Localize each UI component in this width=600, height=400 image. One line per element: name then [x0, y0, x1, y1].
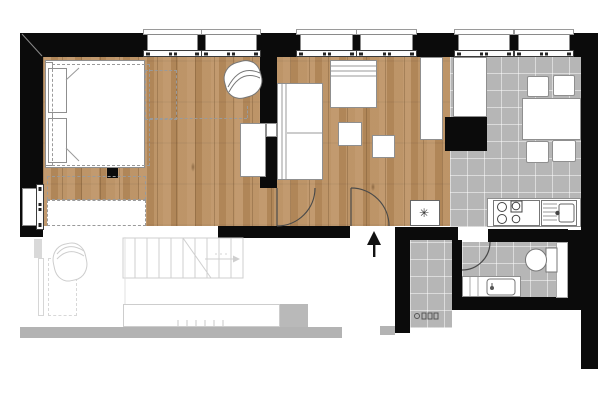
- interior-wall-hall-bottom: [218, 226, 350, 238]
- tall-kitchen-cabinet: [453, 57, 487, 117]
- faded-side-window: [38, 258, 44, 316]
- wall-bathroom-top: [488, 229, 568, 242]
- wall-bathroom-bottom: [452, 297, 588, 310]
- sofa: [277, 83, 323, 180]
- faded-left-wall-block: [34, 239, 42, 258]
- entrance-arrow: [367, 231, 381, 257]
- floor-plan: ✳: [0, 0, 600, 400]
- dashed-ceiling-line: [150, 118, 247, 119]
- hall-wardrobe: [420, 57, 443, 140]
- wall-vestibule-left: [395, 240, 410, 333]
- faded-staircase: [123, 238, 243, 278]
- duct-shaft: [556, 242, 568, 298]
- washing-machine-symbol: ✳: [419, 207, 429, 219]
- dining-chair: [526, 141, 549, 163]
- coffee-table-small: [338, 122, 362, 146]
- faded-counter: [123, 304, 280, 327]
- coffee-table-small: [372, 135, 395, 158]
- interior-wall-entry-right: [395, 227, 458, 240]
- bathroom-vanity: [462, 276, 521, 297]
- daybed-seat: [330, 60, 377, 108]
- dashed-ceiling-outline-bed: [52, 64, 150, 166]
- cooktop: [493, 200, 540, 226]
- dining-table: [522, 98, 581, 140]
- desk-extension: [266, 123, 277, 137]
- dashed-wardrobe-below-bed-2: [47, 200, 146, 226]
- kitchen-sink-unit: [541, 200, 577, 226]
- dining-chair: [553, 75, 575, 96]
- faded-wall-stub: [380, 326, 395, 335]
- faded-lower-wall-band: [20, 327, 342, 338]
- dining-chair: [552, 140, 576, 162]
- kitchen-wall-block: [445, 117, 487, 151]
- vestibule-tile-floor: [410, 240, 452, 328]
- dashed-wardrobe-right-of-bed: [145, 70, 177, 120]
- desk: [240, 123, 266, 177]
- dashed-ceiling-line-vert: [247, 106, 248, 118]
- wall-bathroom-right-pier: [568, 230, 581, 298]
- exterior-wall-right: [581, 33, 598, 369]
- dashed-wardrobe-below-bed-1: [47, 176, 146, 200]
- faded-column-block: [280, 304, 308, 327]
- dining-chair: [527, 76, 549, 97]
